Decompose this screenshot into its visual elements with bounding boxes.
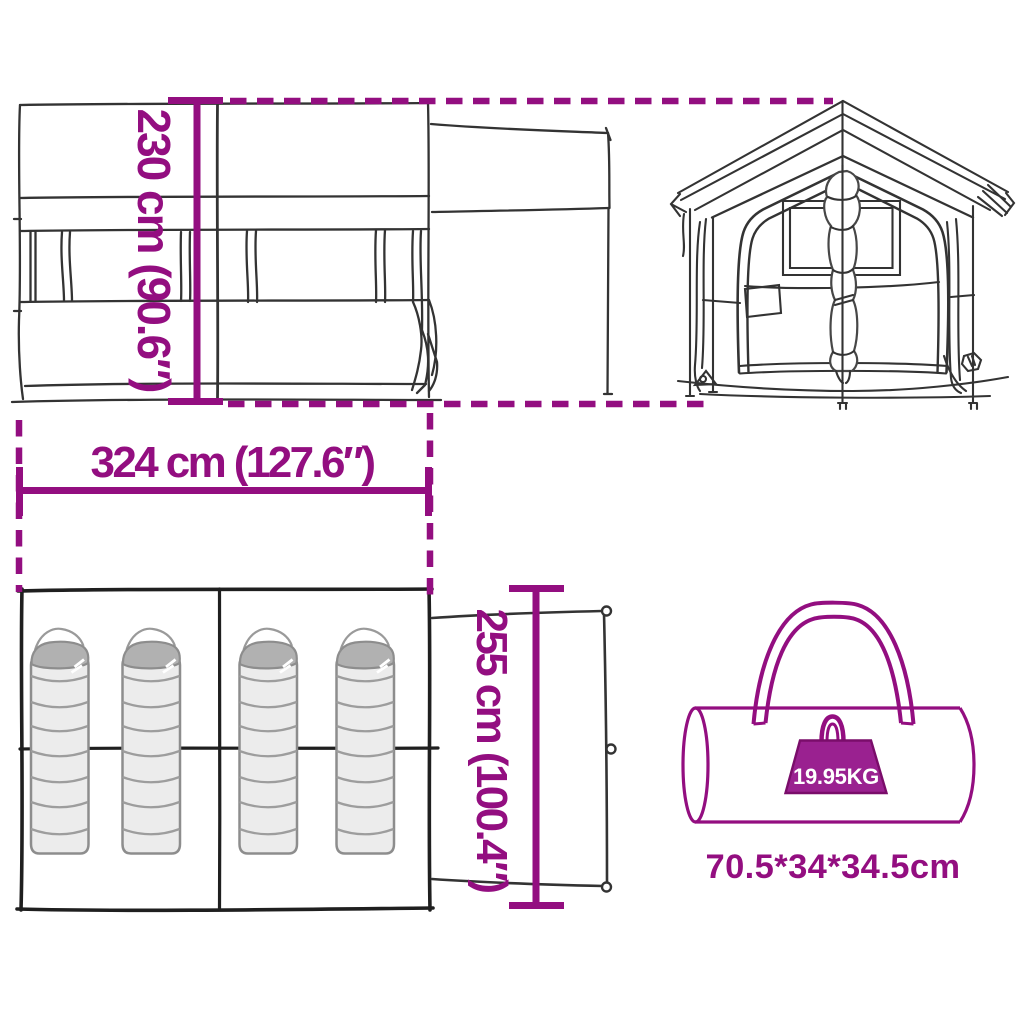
svg-text:324 cm (127.6″): 324 cm (127.6″) [91,438,375,487]
svg-text:19.95KG: 19.95KG [793,764,879,789]
svg-text:255 cm (100.4″): 255 cm (100.4″) [467,609,516,893]
svg-text:70.5*34*34.5cm: 70.5*34*34.5cm [706,848,961,886]
svg-text:230 cm (90.6″): 230 cm (90.6″) [128,109,180,393]
